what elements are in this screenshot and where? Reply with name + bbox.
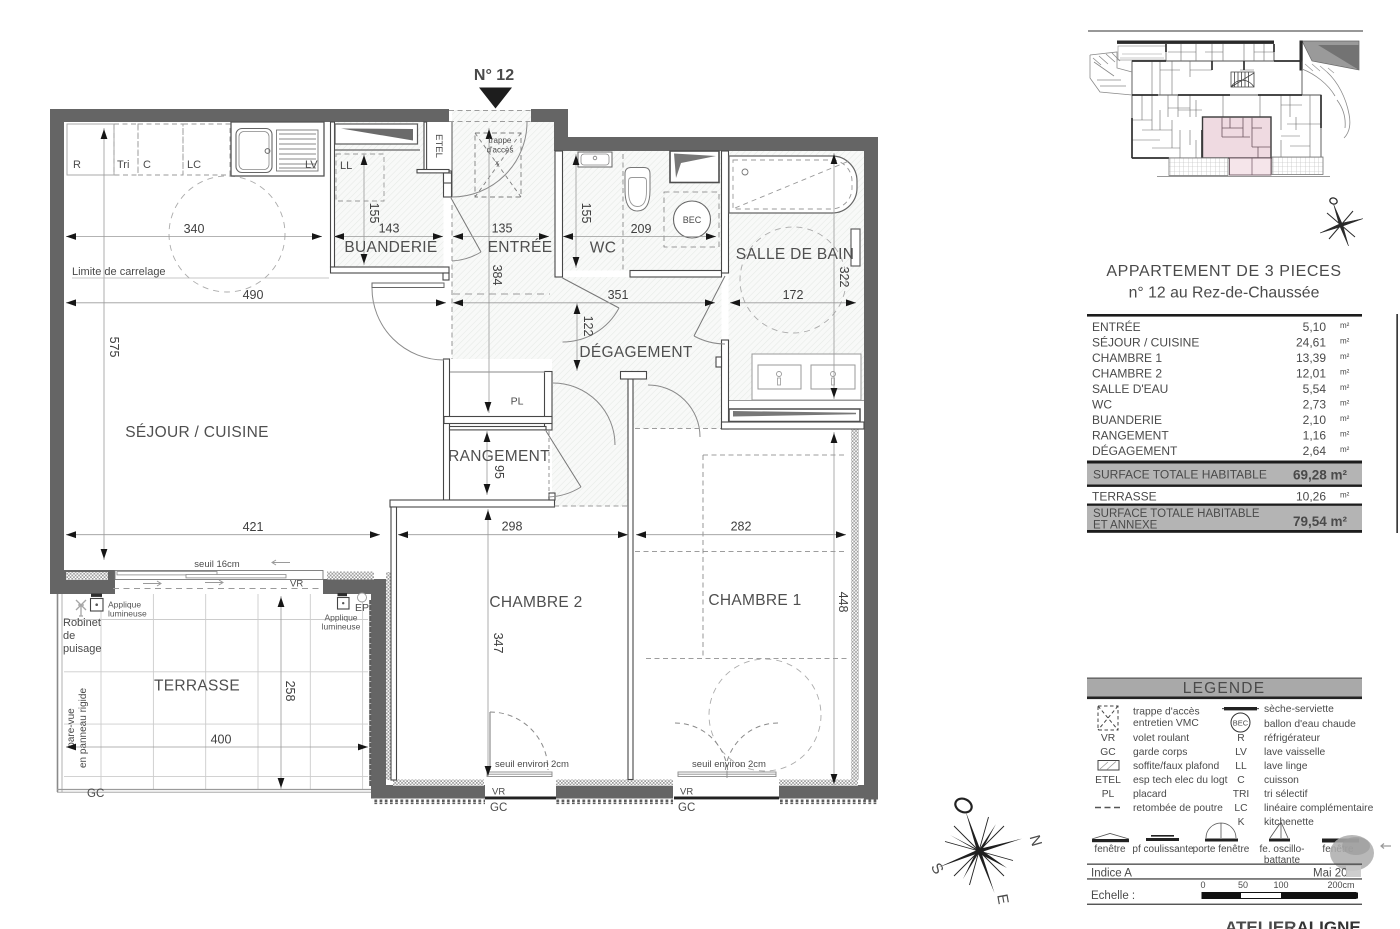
svg-text:Robinet: Robinet	[63, 617, 101, 629]
svg-text:347: 347	[491, 633, 505, 654]
svg-text:APPARTEMENT DE 3 PIECES: APPARTEMENT DE 3 PIECES	[1106, 263, 1341, 280]
svg-text:13,39: 13,39	[1296, 351, 1326, 365]
svg-text:DÉGAGEMENT: DÉGAGEMENT	[579, 344, 692, 361]
svg-text:LC: LC	[1234, 803, 1248, 814]
svg-text:de: de	[63, 630, 75, 642]
svg-text:ENTRÉE: ENTRÉE	[488, 239, 553, 256]
svg-text:réfrigérateur: réfrigérateur	[1264, 733, 1321, 744]
svg-text:C: C	[143, 159, 151, 171]
svg-text:LEGENDE: LEGENDE	[1183, 680, 1265, 697]
svg-text:SÉJOUR / CUISINE: SÉJOUR / CUISINE	[125, 424, 268, 441]
svg-text:ENTRÉE: ENTRÉE	[1092, 319, 1141, 334]
svg-text:143: 143	[379, 222, 400, 236]
svg-text:ETEL: ETEL	[433, 134, 444, 158]
svg-text:575: 575	[107, 337, 121, 358]
svg-text:PL: PL	[1102, 789, 1115, 800]
svg-text:384: 384	[490, 265, 504, 286]
svg-text:258: 258	[283, 681, 297, 702]
svg-text:340: 340	[184, 222, 205, 236]
svg-text:BUANDERIE: BUANDERIE	[1092, 413, 1162, 427]
svg-text:ET ANNEXE: ET ANNEXE	[1093, 520, 1158, 532]
svg-text:155: 155	[579, 203, 593, 224]
svg-text:seuil environ 2cm: seuil environ 2cm	[495, 759, 569, 770]
svg-text:VR: VR	[1101, 733, 1115, 744]
svg-text:448: 448	[836, 592, 850, 613]
svg-text:m²: m²	[1340, 445, 1350, 454]
svg-text:esp tech elec du logt: esp tech elec du logt	[1133, 775, 1228, 786]
svg-text:soffite/faux plafond: soffite/faux plafond	[1133, 761, 1220, 772]
svg-text:69,28 m²: 69,28 m²	[1293, 468, 1348, 483]
svg-text:209: 209	[631, 222, 652, 236]
svg-text:10,26: 10,26	[1296, 490, 1326, 504]
svg-text:m²: m²	[1340, 491, 1350, 500]
svg-text:en panneau rigide: en panneau rigide	[78, 688, 89, 769]
svg-text:SURFACE TOTALE HABITABLE: SURFACE TOTALE HABITABLE	[1093, 468, 1267, 482]
svg-text:DÉGAGEMENT: DÉGAGEMENT	[1092, 443, 1178, 458]
svg-text:trappe d'accès: trappe d'accès	[1133, 707, 1200, 718]
svg-text:135: 135	[492, 222, 513, 236]
svg-text:lave linge: lave linge	[1264, 761, 1308, 772]
svg-text:K: K	[1238, 817, 1245, 828]
svg-text:322: 322	[837, 267, 851, 288]
svg-text:lumineuse: lumineuse	[108, 609, 147, 619]
svg-text:RANGEMENT: RANGEMENT	[1092, 429, 1169, 443]
svg-text:m²: m²	[1340, 368, 1350, 377]
svg-text:x: x	[495, 158, 499, 167]
svg-text:421: 421	[243, 520, 264, 534]
svg-text:CHAMBRE 2: CHAMBRE 2	[489, 594, 582, 611]
svg-text:R: R	[73, 159, 81, 171]
svg-text:LL: LL	[1235, 761, 1247, 772]
svg-text:79,54 m²: 79,54 m²	[1293, 514, 1348, 529]
svg-text:linéaire complémentaire: linéaire complémentaire	[1264, 803, 1374, 814]
svg-text:351: 351	[608, 288, 629, 302]
svg-text:490: 490	[243, 288, 264, 302]
svg-text:Echelle :: Echelle :	[1091, 890, 1135, 902]
svg-text:fe. oscillo-: fe. oscillo-	[1259, 844, 1304, 855]
svg-text:BEC: BEC	[1233, 719, 1249, 728]
svg-text:placard: placard	[1133, 789, 1167, 800]
svg-text:lave vaisselle: lave vaisselle	[1264, 747, 1326, 758]
svg-text:GC: GC	[678, 802, 695, 814]
svg-text:SÉJOUR / CUISINE: SÉJOUR / CUISINE	[1092, 335, 1199, 350]
svg-text:Limite de carrelage: Limite de carrelage	[72, 266, 166, 278]
svg-text:m²: m²	[1340, 337, 1350, 346]
svg-text:GC: GC	[490, 802, 507, 814]
svg-text:pf coulissante: pf coulissante	[1132, 844, 1194, 855]
svg-text:298: 298	[502, 520, 523, 534]
svg-text:fenêtre: fenêtre	[1094, 844, 1126, 855]
svg-text:Indice A: Indice A	[1091, 868, 1132, 880]
svg-text:TERRASSE: TERRASSE	[154, 678, 240, 695]
svg-text:seuil 16cm: seuil 16cm	[194, 559, 239, 570]
svg-text:172: 172	[783, 288, 804, 302]
svg-text:Tri: Tri	[117, 159, 129, 171]
svg-text:SURFACE TOTALE HABITABLE: SURFACE TOTALE HABITABLE	[1093, 508, 1260, 520]
svg-text:EP: EP	[355, 602, 369, 614]
svg-text:282: 282	[731, 520, 752, 534]
svg-text:TERRASSE: TERRASSE	[1092, 490, 1157, 504]
svg-text:pare-vue: pare-vue	[66, 708, 77, 748]
svg-text:LV: LV	[1235, 747, 1247, 758]
svg-text:GC: GC	[87, 788, 104, 800]
svg-text:PL: PL	[511, 396, 524, 408]
svg-text:155: 155	[367, 203, 381, 224]
svg-text:WC: WC	[1092, 398, 1112, 412]
svg-text:CHAMBRE 1: CHAMBRE 1	[1092, 351, 1162, 365]
svg-text:24,61: 24,61	[1296, 336, 1326, 350]
svg-text:1,16: 1,16	[1303, 429, 1327, 443]
svg-text:m²: m²	[1340, 399, 1350, 408]
svg-text:n° 12 au Rez-de-Chaussée: n° 12 au Rez-de-Chaussée	[1129, 285, 1320, 302]
svg-text:CHAMBRE 1: CHAMBRE 1	[708, 592, 801, 609]
svg-text:2,10: 2,10	[1303, 413, 1327, 427]
svg-text:0: 0	[1200, 880, 1205, 890]
svg-text:VR: VR	[290, 579, 303, 590]
svg-text:95: 95	[492, 465, 506, 479]
svg-text:5,10: 5,10	[1303, 320, 1327, 334]
svg-text:ETEL: ETEL	[1095, 775, 1121, 786]
svg-text:2,73: 2,73	[1303, 398, 1327, 412]
svg-text:200cm: 200cm	[1327, 880, 1354, 890]
svg-text:ballon d'eau chaude: ballon d'eau chaude	[1264, 719, 1356, 730]
svg-text:TRI: TRI	[1233, 789, 1250, 800]
svg-text:WC: WC	[590, 240, 616, 257]
svg-text:SALLE D'EAU: SALLE D'EAU	[1092, 382, 1168, 396]
svg-text:BEC: BEC	[683, 215, 702, 225]
svg-text:100: 100	[1273, 880, 1288, 890]
svg-text:ATELIERALIGNE: ATELIERALIGNE	[1225, 918, 1361, 929]
svg-text:sèche-serviette: sèche-serviette	[1264, 704, 1334, 715]
svg-text:lumineuse: lumineuse	[322, 622, 361, 632]
svg-text:VR: VR	[492, 787, 505, 798]
svg-text:garde corps: garde corps	[1133, 747, 1187, 758]
svg-text:BUANDERIE: BUANDERIE	[344, 239, 437, 256]
svg-text:m²: m²	[1340, 414, 1350, 423]
svg-text:kitchenette: kitchenette	[1264, 817, 1314, 828]
svg-text:LV: LV	[305, 159, 318, 171]
svg-text:5,54: 5,54	[1303, 382, 1327, 396]
svg-text:50: 50	[1238, 880, 1248, 890]
svg-text:GC: GC	[1100, 747, 1116, 758]
svg-text:Mai 20: Mai 20	[1313, 868, 1348, 880]
svg-text:SALLE DE BAIN: SALLE DE BAIN	[736, 246, 854, 263]
svg-text:m²: m²	[1340, 352, 1350, 361]
svg-text:cuisson: cuisson	[1264, 775, 1299, 786]
svg-text:m²: m²	[1340, 321, 1350, 330]
svg-text:volet roulant: volet roulant	[1133, 733, 1189, 744]
svg-text:LC: LC	[187, 159, 201, 171]
svg-text:C: C	[1237, 775, 1245, 786]
svg-text:CHAMBRE 2: CHAMBRE 2	[1092, 367, 1162, 381]
svg-text:puisage: puisage	[63, 643, 102, 655]
svg-text:N° 12: N° 12	[474, 67, 514, 84]
svg-text:tri sélectif: tri sélectif	[1264, 789, 1308, 800]
svg-text:retombée de poutre: retombée de poutre	[1133, 803, 1223, 814]
svg-text:m²: m²	[1340, 383, 1350, 392]
svg-text:RANGEMENT: RANGEMENT	[448, 448, 550, 465]
svg-text:VR: VR	[680, 787, 693, 798]
svg-text:R: R	[1237, 733, 1244, 744]
svg-text:12,01: 12,01	[1296, 367, 1326, 381]
svg-text:seuil environ 2cm: seuil environ 2cm	[692, 759, 766, 770]
svg-text:porte fenêtre: porte fenêtre	[1193, 844, 1250, 855]
svg-text:2,64: 2,64	[1303, 444, 1327, 458]
svg-text:d'accès: d'accès	[487, 146, 514, 155]
svg-text:LL: LL	[340, 160, 352, 172]
svg-text:m²: m²	[1340, 430, 1350, 439]
svg-text:122: 122	[581, 316, 595, 337]
svg-text:entretien VMC: entretien VMC	[1133, 718, 1199, 729]
svg-text:trappe: trappe	[489, 136, 512, 145]
svg-text:400: 400	[211, 733, 232, 747]
